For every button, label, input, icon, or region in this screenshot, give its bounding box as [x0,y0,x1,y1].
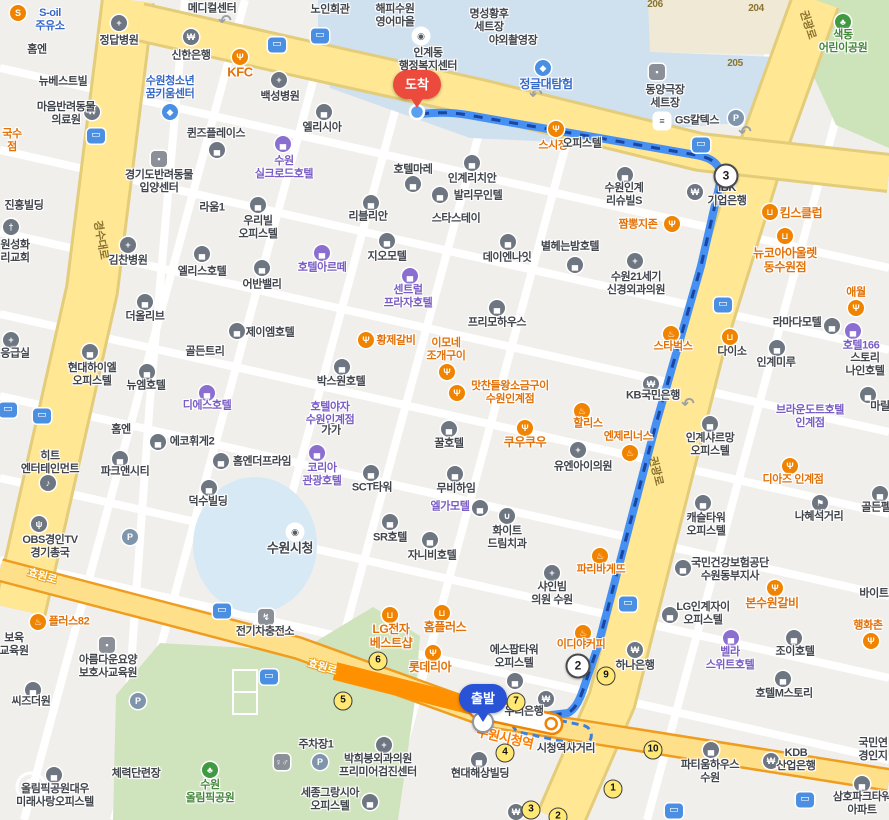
bed-icon[interactable]: ▄ [209,142,225,158]
bed-icon[interactable]: ▄ [363,195,379,211]
map-label[interactable]: 바이트 [859,588,888,601]
pk-icon[interactable]: P [130,693,146,709]
map-label[interactable]: 리블리안 [349,211,388,224]
route-waypoint-3[interactable]: 3 [714,164,739,189]
bed-icon[interactable]: ▄ [500,234,516,250]
bank-icon[interactable]: ₩ [183,29,199,45]
map-label[interactable]: 더올리브 [126,311,165,324]
map-label[interactable]: 어반밸리 [243,279,282,292]
map-label[interactable]: 골든트리 [186,346,225,359]
pk-icon[interactable]: P [122,529,138,545]
start-pin-tail [476,711,490,722]
hosp-icon[interactable]: + [544,565,560,581]
map-label[interactable]: 이모네조개구이 [427,337,466,363]
rest-icon[interactable]: Ψ [548,121,564,137]
map-label[interactable]: 신한은행 [172,50,211,63]
bed-icon[interactable]: ▄ [489,300,505,316]
bus-icon[interactable]: ▭ [714,298,732,313]
bed-icon[interactable]: ▄ [137,294,153,310]
bus-icon[interactable]: ▭ [268,38,286,53]
map-label[interactable]: 지오모텔 [368,251,407,264]
tree-icon[interactable]: ♣ [835,14,851,30]
bus-icon[interactable]: ▭ [260,670,278,685]
map-label[interactable]: 라마다모텔 [773,317,822,330]
map-label[interactable]: 파리바게뜨 [577,564,626,577]
bed-icon[interactable]: ▄ [150,434,166,450]
map-label[interactable]: 수원시청 [267,540,313,555]
map-label[interactable]: 유엔아이의원 [554,461,612,474]
map-label[interactable]: 라움1 [199,202,224,215]
map-label[interactable]: 야외촬영장 [489,35,538,48]
bus-icon[interactable]: ▭ [33,409,51,424]
bus-icon[interactable]: ▭ [0,403,17,418]
map-label[interactable]: 짬뽕지존 [619,219,658,232]
map-label[interactable]: 나혜석거리 [795,511,844,524]
cafe-icon[interactable]: ♨ [592,548,608,564]
bus-icon[interactable]: ▭ [692,138,710,153]
map-label[interactable]: 김찬병원 [109,255,148,268]
map-label[interactable]: 화이트드림치과 [488,525,527,551]
map-label[interactable]: 메디컬센터 [188,3,237,16]
map-label[interactable]: 오피스텔 [563,138,602,151]
cart-icon[interactable]: ⊔ [434,605,450,621]
map-label[interactable]: 보육교육원 [0,632,29,658]
bank-icon[interactable]: ₩ [687,184,703,200]
map-label[interactable]: 본수원갈비 [745,596,798,610]
bus-icon[interactable]: ▭ [87,129,105,144]
map-viewport[interactable]: S+₩Ψ+◆∴▄▄▪▭▭▭◉◆▪Ψ▄▄▄▄♣≡P▭₩▄⊔Ψ⊔+Ψ▄▄▄♨⊔▄₩▭… [0,0,889,820]
map-label[interactable]: 체력단련장 [112,768,161,781]
bed-icon[interactable]: ▄ [82,344,98,360]
destination-pin-tail [410,97,424,108]
bed-icon[interactable]: ▄ [363,465,379,481]
subway-exit-5[interactable]: 5 [334,692,353,711]
map-label[interactable]: OBS경인TV경기총국 [22,534,77,560]
bed-icon[interactable]: ▄ [316,104,332,120]
cart-icon[interactable]: ⊔ [762,204,778,220]
start-pin[interactable]: 출발 [459,684,507,722]
map-label[interactable]: 맛찬들왕소금구이수원인계점 [471,380,549,406]
map-label[interactable]: 노인회관 [311,4,350,17]
bed-icon[interactable]: ▄ [250,197,266,213]
bed-icon[interactable]: ▄ [702,416,718,432]
map-label[interactable]: 인계리치안 [448,173,497,186]
rest-icon[interactable]: Ψ [439,364,455,380]
map-label[interactable]: S-oil주유소 [35,7,64,33]
map-label[interactable]: SR호텔 [373,532,407,545]
bed-icon[interactable]: ▄ [854,776,870,792]
subway-exit-2[interactable]: 2 [549,808,568,820]
cafe-icon[interactable]: ♨ [30,614,46,630]
bed-icon[interactable]: ▄ [824,318,840,334]
map-label[interactable]: 호텔마레 [394,164,433,177]
map-label[interactable]: 하나은행 [616,660,655,673]
bedp-icon[interactable]: ▄ [309,445,325,461]
rest-icon[interactable]: Ψ [449,385,465,401]
bed-icon[interactable]: ▄ [201,480,217,496]
map-label[interactable]: 홈엔 [111,424,130,437]
bag-icon[interactable]: ⊔ [382,607,398,623]
map-label[interactable]: KB국민은행 [626,390,680,403]
map-label[interactable]: 수원실크로드호텔 [255,155,313,181]
map-label[interactable]: 홈엔 [27,44,46,57]
map-label[interactable]: 색동어린이공원 [819,29,868,55]
map-label[interactable]: LG인계자이오피스텔 [676,601,729,627]
map-label[interactable]: 뉴엠호텔 [127,380,166,393]
bed-icon[interactable]: ▄ [769,340,785,356]
map-label[interactable]: 스타벅스 [654,341,693,354]
bus-icon[interactable]: ▭ [665,804,683,819]
bed-icon[interactable]: ▄ [617,167,633,183]
map-label[interactable]: 현대하이엘오피스텔 [68,362,117,388]
map-label[interactable]: 뉴코아아울렛동수원점 [753,246,817,274]
map-label[interactable]: 스타스테이 [432,213,481,226]
bus-icon[interactable]: ▭ [796,793,814,808]
map-label: 204 [748,3,764,15]
map-label[interactable]: 주차장1 [299,739,334,752]
hosp-icon[interactable]: + [271,72,287,88]
map-label[interactable]: 플러스82 [49,616,90,629]
sq-icon[interactable]: ▪ [151,151,167,167]
map-label[interactable]: SCT타워 [352,482,392,495]
rest-icon[interactable]: Ψ [358,332,374,348]
map-label[interactable]: 동양극장세트장 [646,84,685,110]
map-label[interactable]: 브라운도트호텔인계점 [776,404,844,430]
map-label[interactable]: 할리스 [573,418,602,431]
map-label[interactable]: 명성황후세트장 [470,8,509,34]
map-label: 206 [647,0,663,11]
bus-icon[interactable]: ▭ [311,29,329,44]
bed-icon[interactable]: ▄ [775,671,791,687]
map-label[interactable]: 애월 [846,287,865,300]
bed-icon[interactable]: ▄ [362,794,378,810]
subway-exit-1[interactable]: 1 [604,780,623,799]
bus-icon[interactable]: ▭ [213,604,231,619]
map-label[interactable]: 꿀호텔 [434,438,463,451]
map-label[interactable]: 현대해상빌딩 [451,768,509,781]
map-label[interactable]: 수원올림픽공원 [186,779,235,805]
oil-icon[interactable]: S [10,5,26,21]
map-label[interactable]: 벨라스위트호텔 [706,646,755,672]
arr-icon[interactable]: ↶ [678,395,698,415]
bed-icon[interactable]: ▄ [379,233,395,249]
sq-icon[interactable]: ▪ [99,637,115,653]
map-label[interactable]: 다이소 [717,346,746,359]
map-label: 205 [727,58,743,70]
rest-icon[interactable]: Ψ [425,645,441,661]
map-label[interactable]: 수원21세기신경외과의원 [607,271,665,297]
map-label[interactable]: 국민연경인지 [858,737,887,763]
bedp-icon[interactable]: ▄ [723,630,739,646]
bed-icon[interactable]: ▄ [194,246,210,262]
rest-icon[interactable]: Ψ [232,49,248,65]
bluec-icon[interactable]: ◆ [162,104,178,120]
map-label[interactable]: 경기도반려동물입양센터 [125,169,193,195]
toilet-icon[interactable]: ♀♂ [274,754,290,770]
bed-icon[interactable]: ▄ [786,630,802,646]
sq-icon[interactable]: ▪ [649,64,665,80]
map-label[interactable]: 올림픽공원대우미래사랑오피스텔 [16,783,94,809]
hosp-icon[interactable]: + [3,332,19,348]
map-label[interactable]: 인계샤르망오피스텔 [686,432,735,458]
route-waypoint-2[interactable]: 2 [566,654,591,679]
map-label[interactable]: 덕수빌딩 [189,496,228,509]
subway-exit-6[interactable]: 6 [369,652,388,671]
map-label[interactable]: 무비하임 [437,483,476,496]
map-label[interactable]: 센트럴프라자호텔 [384,284,433,310]
bank-icon[interactable]: ₩ [627,642,643,658]
arr-icon[interactable]: ↶ [735,123,755,143]
map-label[interactable]: 씨즈더원 [12,696,51,709]
rest-icon[interactable]: Ψ [664,216,680,232]
map-label[interactable]: 황제갈비 [377,335,416,348]
bed-icon[interactable]: ▄ [872,486,888,502]
cast-icon[interactable]: ψ [31,516,47,532]
map-label[interactable]: 조이호텔 [776,646,815,659]
bag-icon[interactable]: ⊔ [777,228,793,244]
map-label[interactable]: 이디야커피 [557,639,606,652]
bed-icon[interactable]: ▄ [334,359,350,375]
map-label[interactable]: 롯데리아 [409,660,452,674]
ev-icon[interactable]: ↯ [258,609,274,625]
bluec-icon[interactable]: ◆ [535,60,551,76]
map-label[interactable]: 자니비호텔 [408,550,457,563]
map-label[interactable]: 파티움하우스수원 [681,759,739,785]
map-label[interactable]: 파크앤시티 [101,466,150,479]
bed-icon[interactable]: ▄ [507,673,523,689]
bed-icon[interactable]: ▄ [675,560,691,576]
map-label[interactable]: LG전자베스트샵 [370,622,413,650]
map-label[interactable]: 호텔야자수원인계점 [306,401,355,427]
map-label[interactable]: 원성화리교회 [0,239,29,265]
map-label[interactable]: 엔제리너스 [604,431,653,444]
map-label[interactable]: 호텔166 [843,340,880,353]
tooth-icon[interactable]: ∪ [499,508,515,524]
rest-icon[interactable]: Ψ [848,300,864,316]
map-label[interactable]: 삼호파크타워아파트 [833,791,889,817]
map-label[interactable]: 홈플러스 [424,620,467,634]
map-label[interactable]: 히트엔터테인먼트 [21,450,79,476]
map-label[interactable]: 박희붕외과의원프리미어검진센터 [339,753,417,779]
start-pin-bubble: 출발 [459,684,507,713]
map-label[interactable]: 호텔아르떼 [298,262,347,275]
bed-icon[interactable]: ▄ [464,155,480,171]
map-label[interactable]: 에코휘게2 [170,436,215,449]
map-label[interactable]: 응급실 [0,348,29,361]
rest-icon[interactable]: Ψ [782,458,798,474]
map-label[interactable]: 수원인계리슈빌S [605,182,644,208]
bed-icon[interactable]: ▄ [472,500,488,516]
bus-icon[interactable]: ▭ [619,597,637,612]
map-label[interactable]: 킴스클럽 [780,206,823,220]
map-label[interactable]: 백성병원 [261,91,300,104]
map-label[interactable]: 발리무인텔 [454,190,503,203]
map-label[interactable]: 퀸즈플레이스 [187,128,245,141]
bed-icon[interactable]: ▄ [422,532,438,548]
bed-icon[interactable]: ▄ [405,176,421,192]
subway-exit-3[interactable]: 3 [522,801,541,820]
map-label[interactable]: 전기차충전소 [236,626,294,639]
hosp-icon[interactable]: + [120,237,136,253]
bed-icon[interactable]: ▄ [703,742,719,758]
bag-icon[interactable]: ⊔ [722,329,738,345]
bed-icon[interactable]: ▄ [695,495,711,511]
map-label[interactable]: 디에스호텔 [183,400,232,413]
map-label[interactable]: 가가 [321,425,340,438]
pk-icon[interactable]: P [312,754,328,770]
map-label[interactable]: 엘리스호텔 [178,266,227,279]
bed-icon[interactable]: ▄ [471,752,487,768]
subway-exit-9[interactable]: 9 [597,667,616,686]
flag-icon[interactable]: ⚑ [812,495,828,511]
destination-pin-bubble: 도착 [393,70,441,99]
map-label[interactable]: 캐슬타워오피스텔 [687,512,726,538]
destination-pin[interactable]: 도착 [393,70,441,108]
bedp-icon[interactable]: ▄ [402,268,418,284]
map-label[interactable]: 박스원호텔 [317,376,366,389]
map-label[interactable]: 수원청소년꿈키움센터 [146,75,195,101]
bed-icon[interactable]: ▄ [382,514,398,530]
map-label[interactable]: 해피수원영어마을 [376,3,415,29]
map-label[interactable]: 프리모하우스 [468,317,526,330]
bed-icon[interactable]: ▄ [213,453,229,469]
bed-icon[interactable]: ▄ [46,767,62,783]
cafe-icon[interactable]: ♨ [622,445,638,461]
bedp-icon[interactable]: ▄ [314,245,330,261]
rest-icon[interactable]: Ψ [863,633,879,649]
map-label[interactable]: 국수점 [2,128,21,154]
map-label[interactable]: 스토리나인호텔 [846,352,885,378]
bed-icon[interactable]: ▄ [441,421,457,437]
map-label[interactable]: 골든펠 [861,502,889,515]
map-label[interactable]: 세종그랑시아오피스텔 [301,787,359,813]
map-label[interactable]: 정글대탐험 [519,77,572,91]
map-label[interactable]: 디아즈 인계점 [763,474,824,487]
map-label[interactable]: 제이엠호텔 [246,327,295,340]
rest-icon[interactable]: Ψ [517,420,533,436]
bedp-icon[interactable]: ▄ [845,323,861,339]
map-label[interactable]: 샤인빔의원 수원 [531,581,573,607]
map-label[interactable]: 시청역사거리 [537,743,595,756]
map-label[interactable]: 홈엔더프라임 [233,456,291,469]
map-label[interactable]: 우리빌오피스텔 [239,215,278,241]
map-label[interactable]: 인계미루 [757,357,796,370]
map-label[interactable]: 호텔M스토리 [755,688,812,701]
map-label[interactable]: 데이엔나잇 [483,252,532,265]
map-label[interactable]: 뉴베스트빌 [39,76,88,89]
music-icon[interactable]: ♪ [40,475,56,491]
map-label[interactable]: 코리아관광호텔 [303,462,342,488]
hosp-icon[interactable]: + [570,442,586,458]
bed-icon[interactable]: ▄ [567,257,583,273]
map-label[interactable]: KFC [227,64,253,79]
bed-icon[interactable]: ▄ [432,187,448,203]
map-label[interactable]: 쿠우쿠우 [504,435,547,449]
map-label[interactable]: 마음반려동물의료원 [37,101,95,127]
tree-icon[interactable]: ♣ [202,762,218,778]
church-icon[interactable]: † [3,219,19,235]
bedp-icon[interactable]: ▄ [275,136,291,152]
hosp-icon[interactable]: + [627,253,643,269]
map-label[interactable]: KDB산업은행 [777,747,816,773]
map-label[interactable]: 별헤는밤호텔 [541,241,599,254]
gov-icon[interactable]: ◉ [413,28,429,44]
gov-icon[interactable]: ◉ [287,524,303,540]
hosp-icon[interactable]: + [111,15,127,31]
map-label[interactable]: 정답병원 [100,35,139,48]
map-label[interactable]: 진흥빌딩 [5,200,44,213]
bed-icon[interactable]: ▄ [254,260,270,276]
bed-icon[interactable]: ▄ [139,364,155,380]
map-label[interactable]: 엘가모텔 [431,501,470,514]
map-label[interactable]: 엘리시아 [303,122,342,135]
hosp-icon[interactable]: + [376,737,392,753]
fuel-icon[interactable]: ≡ [654,113,670,129]
map-label[interactable]: 에스팝타워오피스텔 [490,644,539,670]
subway-exit-4[interactable]: 4 [496,744,515,763]
map-label[interactable]: GS칼텍스 [675,115,719,128]
map-label[interactable]: 마릴 [870,401,889,414]
map-label[interactable]: 국민건강보험공단수원동부지사 [691,557,769,583]
map-label[interactable]: 아름다운요양보호사교육원 [79,654,137,680]
subway-exit-10[interactable]: 10 [644,741,663,760]
bed-icon[interactable]: ▄ [447,466,463,482]
subway-exit-7[interactable]: 7 [507,693,526,712]
map-label[interactable]: 행화촌 [853,620,882,633]
rest-icon[interactable]: Ψ [767,580,783,596]
bed-icon[interactable]: ▄ [229,323,245,339]
